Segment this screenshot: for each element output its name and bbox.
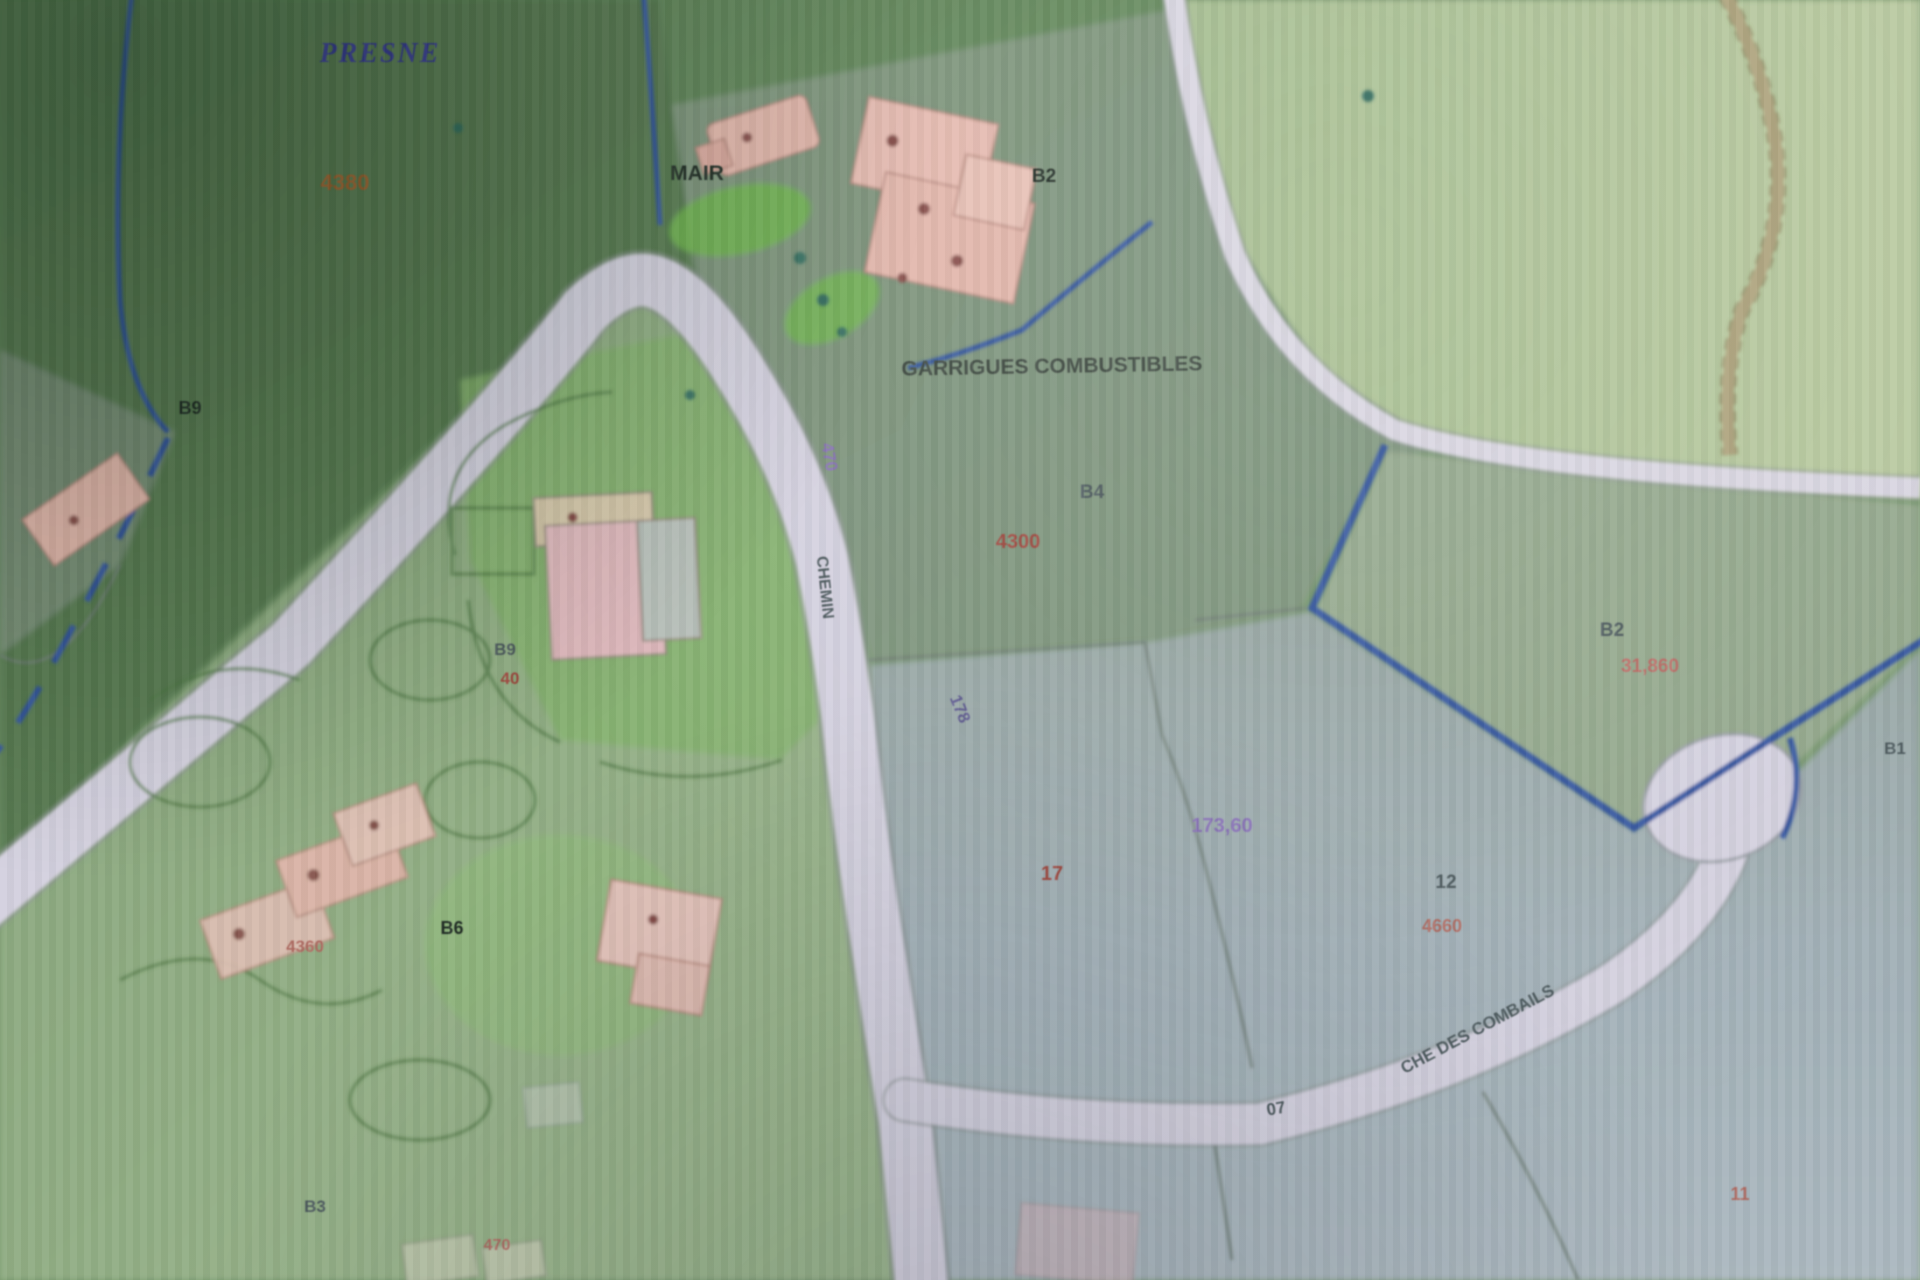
map-label-measure-17360: 173,60 [1191, 815, 1252, 837]
map-label-parcel-b9-left: B9 [178, 398, 201, 418]
map-label-parcel-b2-right: B2 [1600, 620, 1624, 641]
map-label-parcel-17: 17 [1041, 863, 1063, 885]
cadastral-map-canvas: PRESNE4380MAIRB2GARRIGUES COMBUSTIBLESB4… [0, 0, 1920, 1280]
map-label-road-number-07: 07 [1265, 1098, 1287, 1120]
map-label-area-4660: 4660 [1422, 916, 1462, 936]
map-label-parcel-b4: B4 [1080, 482, 1105, 503]
map-label-area-4300: 4300 [996, 531, 1041, 553]
map-label-area-40: 40 [501, 669, 520, 688]
map-label-area-31860: 31,860 [1621, 656, 1679, 677]
map-label-parcel-11: 11 [1730, 1184, 1749, 1204]
map-label-parcel-b2-top: B2 [1032, 166, 1056, 187]
map-label-area-4360: 4360 [286, 937, 324, 956]
building-footprint-bottom-center [1015, 1203, 1139, 1280]
map-label-parcel-12: 12 [1435, 872, 1456, 893]
map-label-parcel-b3: B3 [304, 1197, 326, 1216]
building-footprint-small-grey [523, 1082, 583, 1128]
map-label-parcel-b6: B6 [440, 918, 463, 938]
map-label-area-470-bottom: 470 [484, 1237, 511, 1254]
map-label-mairie-abbrev: MAIR [670, 162, 724, 185]
cadastral-map-viewport[interactable]: PRESNE4380MAIRB2GARRIGUES COMBUSTIBLESB4… [0, 0, 1920, 1280]
map-label-area-number-topleft: 4380 [321, 170, 370, 195]
map-label-parcel-b9-center: B9 [494, 640, 516, 659]
map-label-place-name: PRESNE [319, 38, 441, 69]
map-label-parcel-b1: B1 [1884, 739, 1906, 758]
